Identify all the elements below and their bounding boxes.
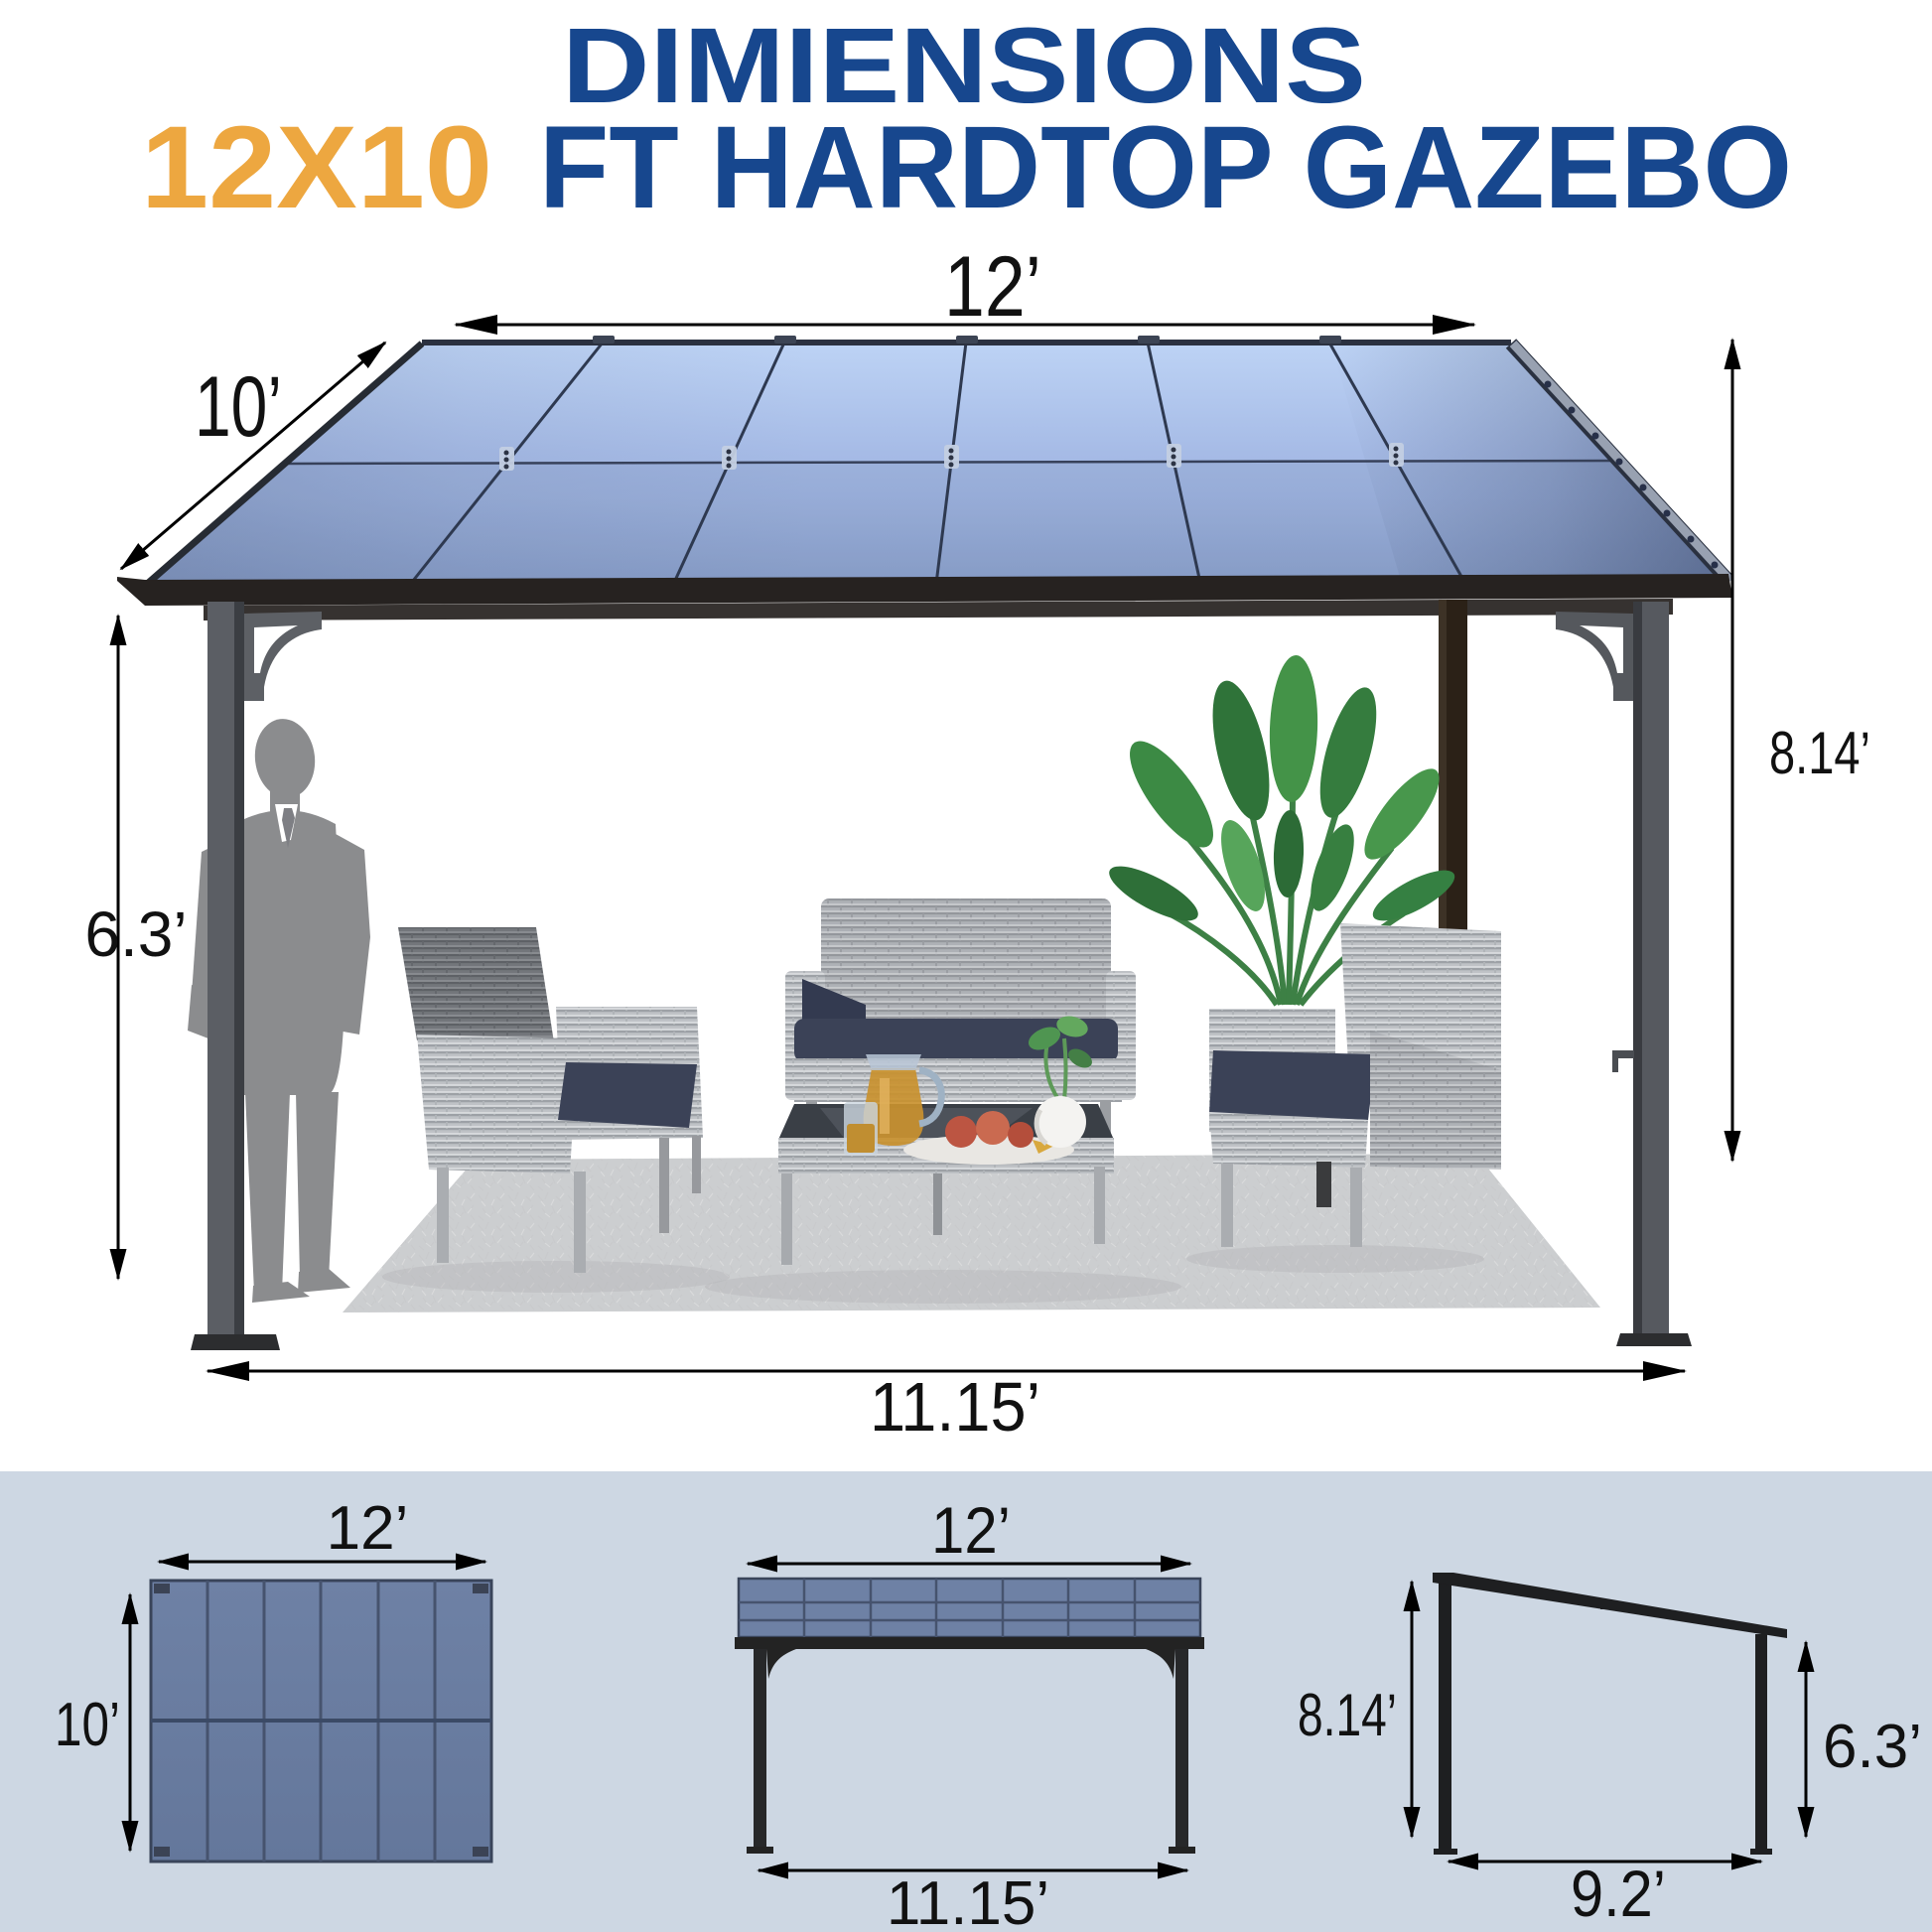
svg-text:6.3’: 6.3’: [84, 898, 187, 970]
svg-text:11.15’: 11.15’: [870, 1368, 1040, 1446]
svg-text:8.14’: 8.14’: [1298, 1682, 1397, 1748]
svg-text:FT HARDTOP GAZEBO: FT HARDTOP GAZEBO: [539, 102, 1792, 233]
svg-text:8.14’: 8.14’: [1769, 720, 1870, 786]
svg-text:12’: 12’: [931, 1493, 1011, 1567]
svg-text:10’: 10’: [55, 1691, 120, 1759]
svg-text:12’: 12’: [944, 239, 1041, 335]
svg-text:10’: 10’: [195, 359, 282, 455]
svg-text:11.15’: 11.15’: [887, 1869, 1049, 1932]
svg-text:9.2’: 9.2’: [1571, 1857, 1666, 1930]
svg-text:12X10: 12X10: [141, 102, 492, 233]
svg-text:12’: 12’: [327, 1494, 409, 1563]
svg-text:6.3’: 6.3’: [1823, 1713, 1922, 1781]
